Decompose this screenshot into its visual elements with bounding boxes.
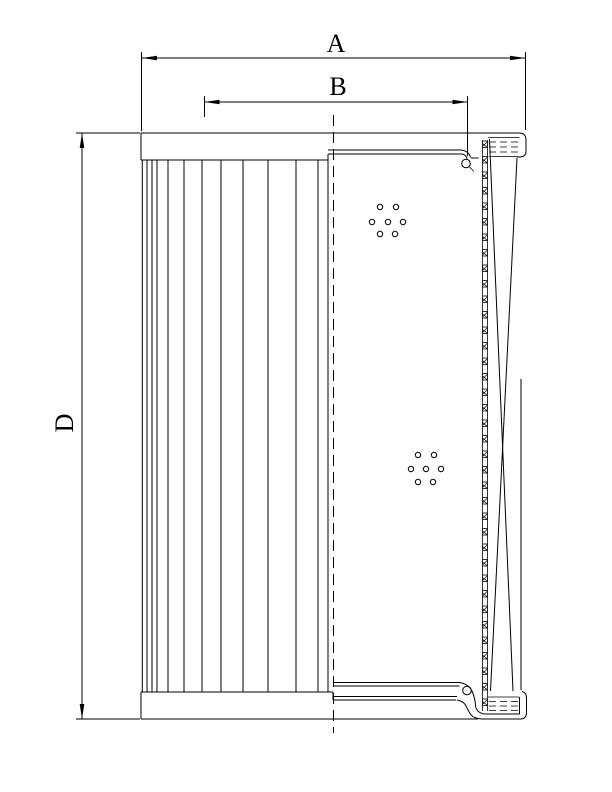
perforation-hole: [415, 452, 420, 457]
dimension-d: D: [50, 133, 140, 719]
dim-a-arrow-left: [142, 56, 157, 61]
dim-b-arrow-left: [205, 100, 220, 105]
dim-a-arrow-right: [510, 56, 525, 61]
tapered-wall-line: [490, 139, 514, 691]
perforation-holes-lower: [408, 452, 443, 484]
top-cap-step-inner: [462, 154, 467, 159]
perforation-hole: [415, 479, 420, 484]
perforation-hole: [377, 231, 382, 236]
dimension-b-label: B: [329, 72, 346, 101]
tube-wall-hatch: [483, 140, 488, 711]
perforation-hole: [377, 204, 382, 209]
perforation-hole: [385, 219, 390, 224]
perforation-hole: [430, 479, 435, 484]
perforation-hole: [431, 452, 436, 457]
perforation-hole: [392, 231, 397, 236]
perforation-hole: [438, 466, 443, 471]
bottom-cap-channel-inner: [457, 700, 520, 719]
perforation-hole: [423, 466, 428, 471]
bottom-cap-right-lip: [520, 692, 527, 720]
dimension-d-label: D: [50, 414, 79, 433]
dim-d-arrow-top: [80, 133, 85, 148]
tapered-wall-line: [491, 158, 518, 691]
bottom-seal-gasket: [488, 697, 519, 711]
dim-b-arrow-right: [453, 100, 468, 105]
pleated-media: [142, 160, 328, 692]
perforation-hole: [400, 219, 405, 224]
technical-drawing: A B D: [0, 0, 612, 792]
dim-d-arrow-bottom: [80, 704, 85, 719]
dimension-a-label: A: [327, 29, 346, 58]
perforation-hole: [369, 219, 374, 224]
perforation-hole: [408, 466, 413, 471]
top-seal-gasket: [488, 138, 520, 157]
dimension-b: B: [205, 72, 468, 156]
perforation-holes-upper: [369, 204, 405, 236]
perforation-hole: [393, 204, 398, 209]
core-tube-wall: [483, 139, 522, 711]
drawing-canvas: A B D: [0, 0, 612, 792]
retainer-rod-section: [462, 159, 471, 168]
